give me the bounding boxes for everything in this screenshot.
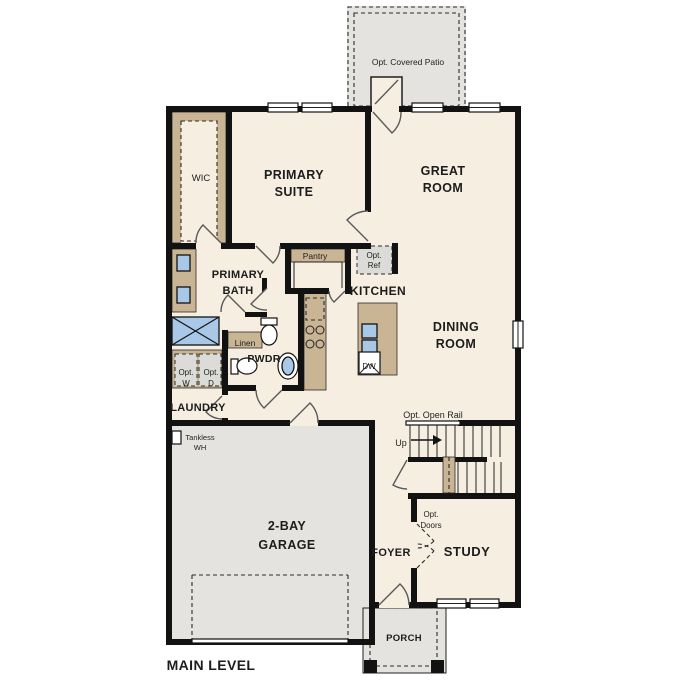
opt-ref-label: Opt.: [366, 251, 381, 260]
wic-label: WIC: [192, 173, 211, 184]
wall-segment: [226, 112, 232, 243]
garage-label: 2-BAY: [268, 519, 307, 533]
sink-basin: [282, 357, 294, 375]
garage-label: GARAGE: [258, 538, 315, 552]
opt-doors-label: Opt.: [423, 510, 438, 519]
primary-bath-label: PRIMARY: [212, 269, 265, 281]
tankless-water-heater: [172, 431, 181, 444]
wall-segment: [365, 112, 371, 212]
primary-suite-label: SUITE: [275, 185, 314, 199]
opt-dryer-label: Opt.: [203, 368, 218, 377]
pwdr-label: PWDR: [247, 353, 280, 365]
window: [437, 599, 466, 608]
porch-column: [431, 660, 444, 673]
dining-room-label: DINING: [433, 320, 479, 334]
study-label: STUDY: [444, 544, 491, 559]
toilet-tank: [261, 318, 277, 325]
kitchen-label: KITCHEN: [350, 284, 406, 298]
wall-segment: [369, 420, 375, 645]
tankless-wh-label: WH: [194, 443, 207, 452]
wall-segment: [515, 106, 521, 608]
floor-plan-drawing: Opt. Covered Patio WIC PRIMARY SUITE GRE…: [0, 0, 687, 687]
vanity-sink: [177, 287, 190, 303]
wall-segment: [285, 249, 291, 294]
primary-suite-label: PRIMARY: [264, 168, 324, 182]
dishwasher-label: DW: [362, 362, 376, 371]
opening: [372, 106, 399, 112]
opt-open-rail-label: Opt. Open Rail: [403, 410, 463, 420]
shower: [172, 317, 219, 345]
window: [412, 103, 443, 112]
wall-segment: [166, 106, 172, 645]
linen-label: Linen: [235, 338, 256, 348]
window: [470, 599, 499, 608]
window: [469, 103, 500, 112]
up-label: Up: [395, 438, 407, 448]
wall-segment: [298, 294, 304, 390]
pantry-label: Pantry: [303, 251, 328, 261]
primary-bath-label: BATH: [223, 285, 254, 297]
dining-room-label: ROOM: [436, 337, 477, 351]
opt-washer-label: W: [182, 379, 190, 388]
opt-ref-label: Ref: [368, 261, 381, 270]
opt-doors-label: Doors: [420, 521, 441, 530]
floor-plan: Opt. Covered Patio WIC PRIMARY SUITE GRE…: [0, 0, 687, 687]
island-sink: [362, 324, 377, 338]
foyer-label: FOYER: [371, 547, 410, 559]
wall-segment: [166, 420, 375, 426]
wall-segment: [166, 106, 521, 112]
window: [513, 321, 523, 348]
vanity-sink: [177, 255, 190, 271]
laundry-label: LAUNDRY: [170, 402, 226, 414]
wall-segment: [392, 243, 398, 274]
porch-column: [364, 660, 377, 673]
pwdr-sink: [278, 353, 298, 379]
bath-toilet: [261, 318, 277, 345]
patio-label: Opt. Covered Patio: [372, 57, 445, 67]
window: [302, 103, 332, 112]
opt-dryer-label: D: [208, 379, 214, 388]
main-level-title: MAIN LEVEL: [167, 657, 256, 673]
wall-segment: [458, 420, 518, 426]
toilet-bowl: [261, 325, 277, 345]
garage-door-sill: [192, 639, 348, 643]
opening: [196, 243, 221, 249]
tankless-wh-label: Tankless: [185, 433, 214, 442]
wall-segment: [408, 493, 518, 499]
great-room-label: ROOM: [423, 181, 464, 195]
opening: [411, 522, 417, 568]
island-sink: [362, 340, 377, 353]
porch-label: PORCH: [386, 633, 422, 644]
great-room-label: GREAT: [421, 164, 466, 178]
window: [268, 103, 298, 112]
wall-segment: [245, 312, 267, 317]
opt-washer-label: Opt.: [178, 368, 193, 377]
open-rail: [406, 421, 460, 425]
kitchen-counter: [304, 292, 326, 390]
